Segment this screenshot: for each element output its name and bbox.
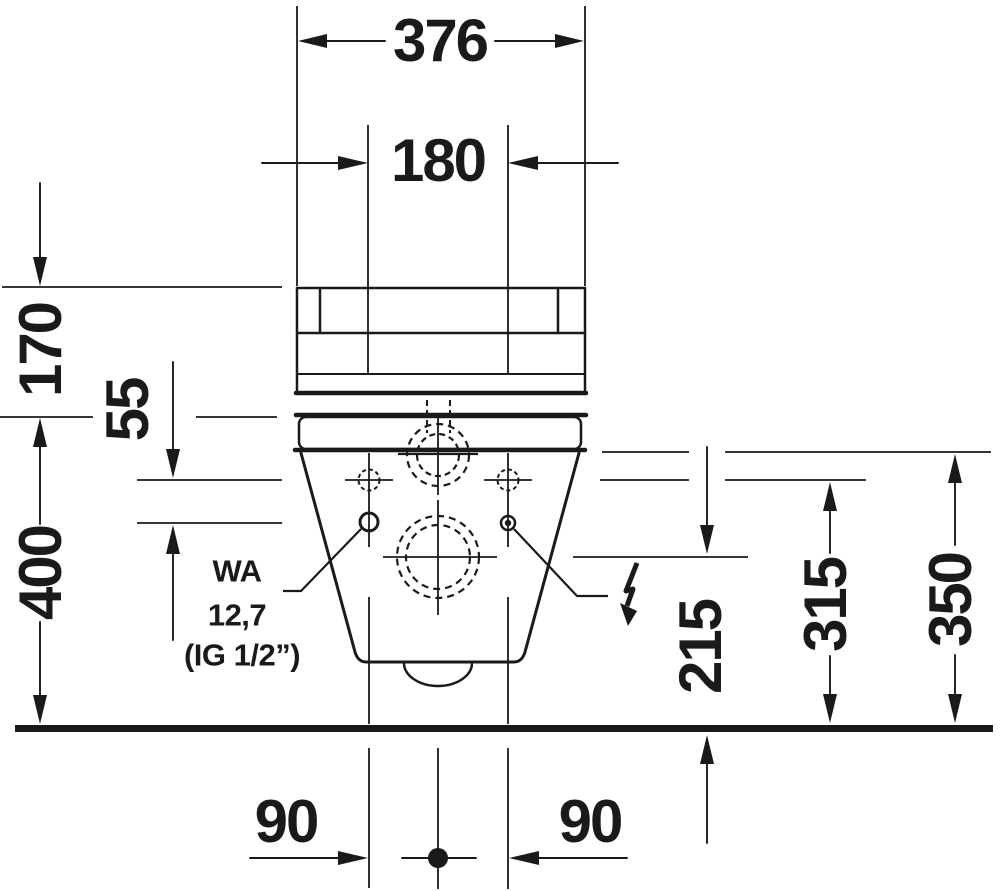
drawing-linework	[0, 0, 1000, 891]
fixture-outline	[295, 288, 586, 686]
water-connection-leader	[283, 529, 361, 591]
water-connection-label-line1: WA	[213, 556, 262, 587]
dim-hole-spacing-label: 180	[391, 131, 485, 191]
dim-supply-offset-label: 55	[98, 379, 158, 442]
dim-tank-height-label: 170	[11, 303, 71, 397]
electrical-connection-leader	[514, 529, 608, 596]
dim-outlet-height-label: 215	[671, 600, 731, 694]
lightning-bolt-icon	[620, 563, 637, 626]
water-connection-label-line2: 12,7	[208, 600, 266, 631]
dim-supply-height-label: 350	[921, 553, 981, 647]
dim-hole-height-label: 315	[796, 558, 856, 652]
dim-hole-offset-right-label: 90	[559, 792, 622, 852]
centerlines	[345, 415, 532, 889]
dim-overall-width-label: 376	[393, 11, 487, 71]
center-reference-dot	[428, 848, 448, 868]
dim-rim-height-label: 400	[11, 526, 71, 620]
technical-drawing: 376 180 170 55 400 215 315 350 90 90 WA …	[0, 0, 1000, 891]
water-connection-label-line3: (IG 1/2”)	[184, 640, 300, 671]
dim-hole-offset-left-label: 90	[255, 792, 318, 852]
